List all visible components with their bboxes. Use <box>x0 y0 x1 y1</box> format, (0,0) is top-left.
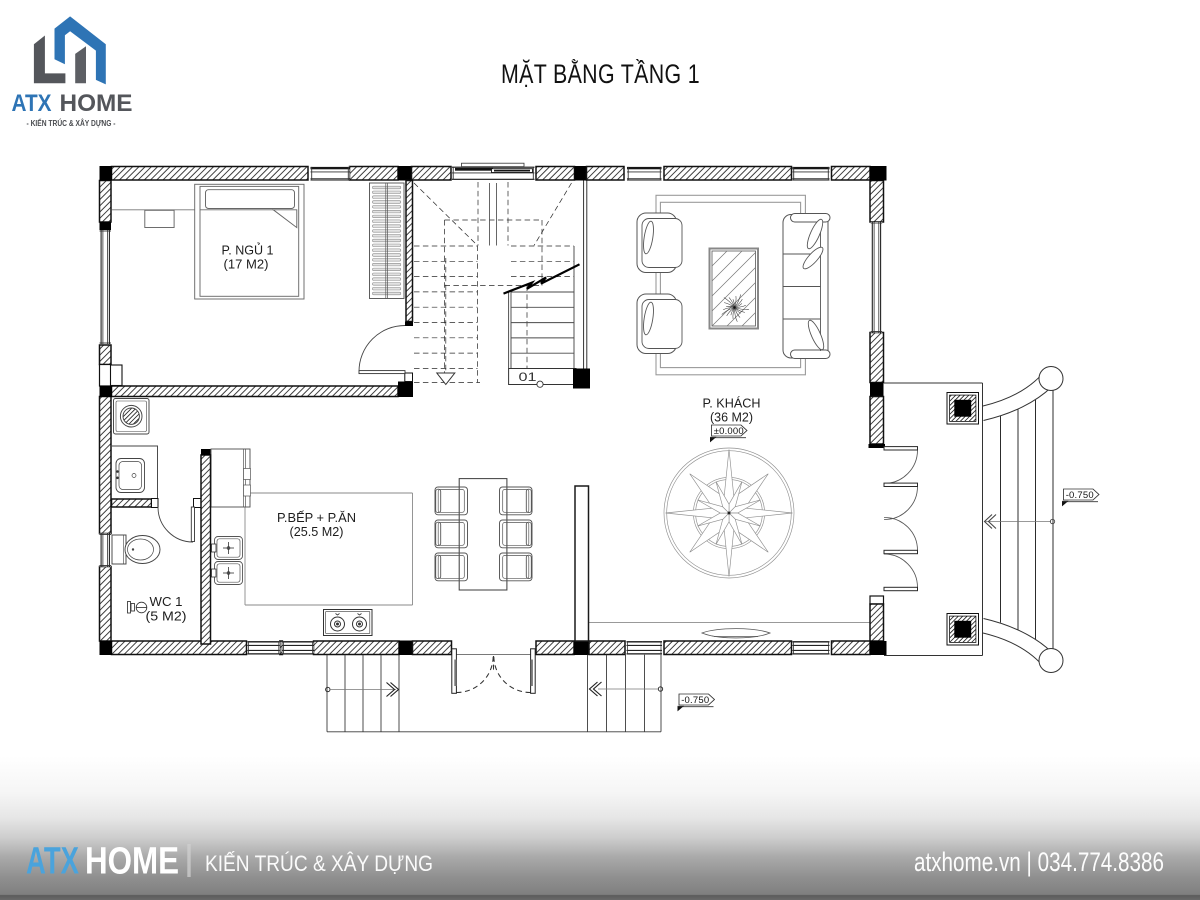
svg-text:WC 1: WC 1 <box>150 595 183 609</box>
svg-text:KIẾN TRÚC & XÂY DỰNG: KIẾN TRÚC & XÂY DỰNG <box>205 851 433 876</box>
svg-text:P. NGỦ 1: P. NGỦ 1 <box>222 243 274 258</box>
svg-text:(36 M2): (36 M2) <box>710 410 753 425</box>
svg-text:- KIẾN TRÚC & XÂY DỰNG -: - KIẾN TRÚC & XÂY DỰNG - <box>27 118 116 128</box>
svg-text:±0.000: ±0.000 <box>714 426 744 437</box>
svg-text:P.BẾP + P.ĂN: P.BẾP + P.ĂN <box>277 510 356 525</box>
svg-text:atxhome.vn | 034.774.8386: atxhome.vn | 034.774.8386 <box>914 847 1164 877</box>
svg-text:01: 01 <box>519 372 537 384</box>
svg-text:P. KHÁCH: P. KHÁCH <box>703 396 761 411</box>
svg-text:ATX: ATX <box>12 90 53 117</box>
svg-text:-0.750: -0.750 <box>1066 490 1094 501</box>
svg-text:HOME: HOME <box>85 841 179 883</box>
svg-text:(25.5 M2): (25.5 M2) <box>290 524 344 539</box>
svg-text:MẶT BẰNG TẦNG 1: MẶT BẰNG TẦNG 1 <box>501 59 700 89</box>
svg-text:HOME: HOME <box>60 90 133 117</box>
svg-text:(17 M2): (17 M2) <box>224 257 269 272</box>
svg-text:-0.750: -0.750 <box>681 695 709 706</box>
svg-text:(5 M2): (5 M2) <box>146 610 187 624</box>
svg-text:ATX: ATX <box>26 841 79 883</box>
